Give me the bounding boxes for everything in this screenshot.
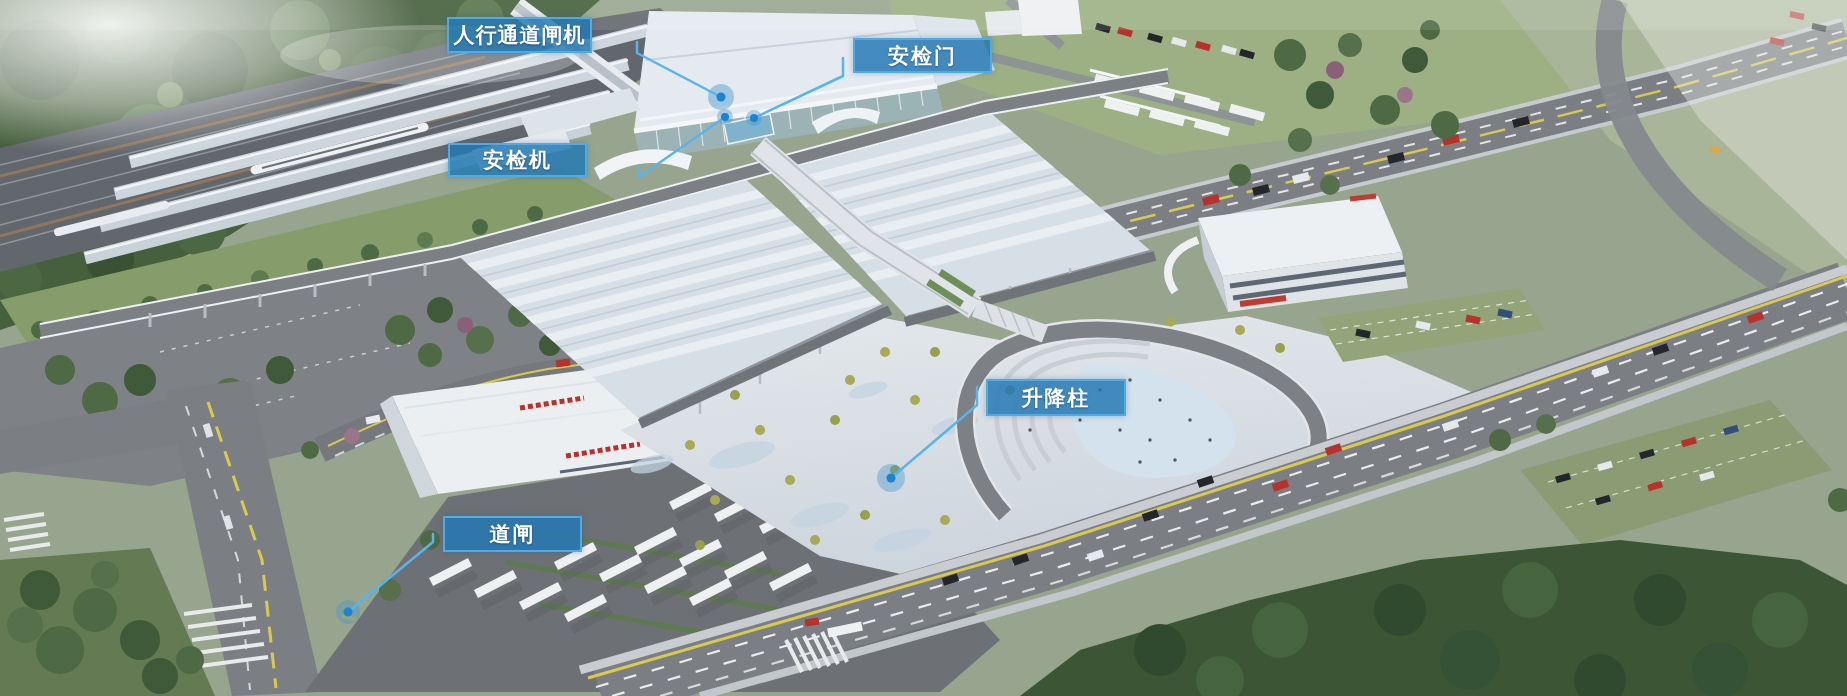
callout-label-security-check-door[interactable]: 安检门 [853, 38, 992, 73]
parking-barrier-gate [1710, 149, 1720, 151]
car-white-road-a [1293, 176, 1309, 180]
car-red-crosswalk [805, 621, 819, 623]
scene-svg [0, 0, 1847, 696]
callout-label-lifting-bollard[interactable]: 升降柱 [986, 379, 1126, 416]
callout-label-pedestrian-channel-gate[interactable]: 人行通道闸机 [447, 17, 592, 53]
callout-label-road-barrier-gate[interactable]: 道闸 [443, 516, 582, 552]
station-aerial-annotated-render: 人行通道闸机 安检门 安检机 升降柱 道闸 [0, 0, 1847, 696]
callout-label-security-check-machine[interactable]: 安检机 [448, 143, 587, 177]
car-red-road-d [556, 362, 570, 364]
garage-red-sign [1350, 196, 1376, 199]
